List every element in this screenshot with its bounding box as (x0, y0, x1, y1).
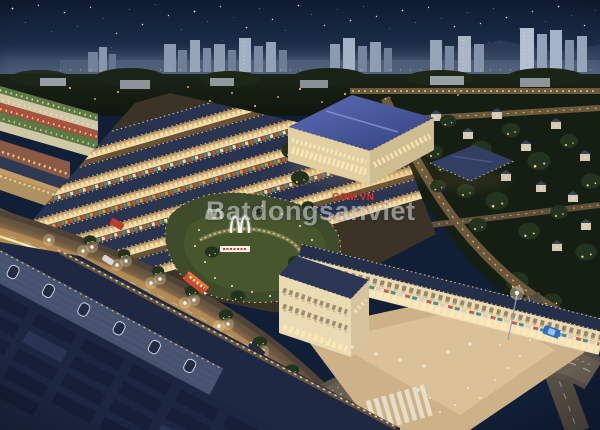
scene-canvas (0, 0, 600, 430)
aerial-night-render: Batdongsanviet COM.VN (0, 0, 600, 430)
vignette (0, 0, 600, 430)
stars-dim (0, 0, 1, 1)
